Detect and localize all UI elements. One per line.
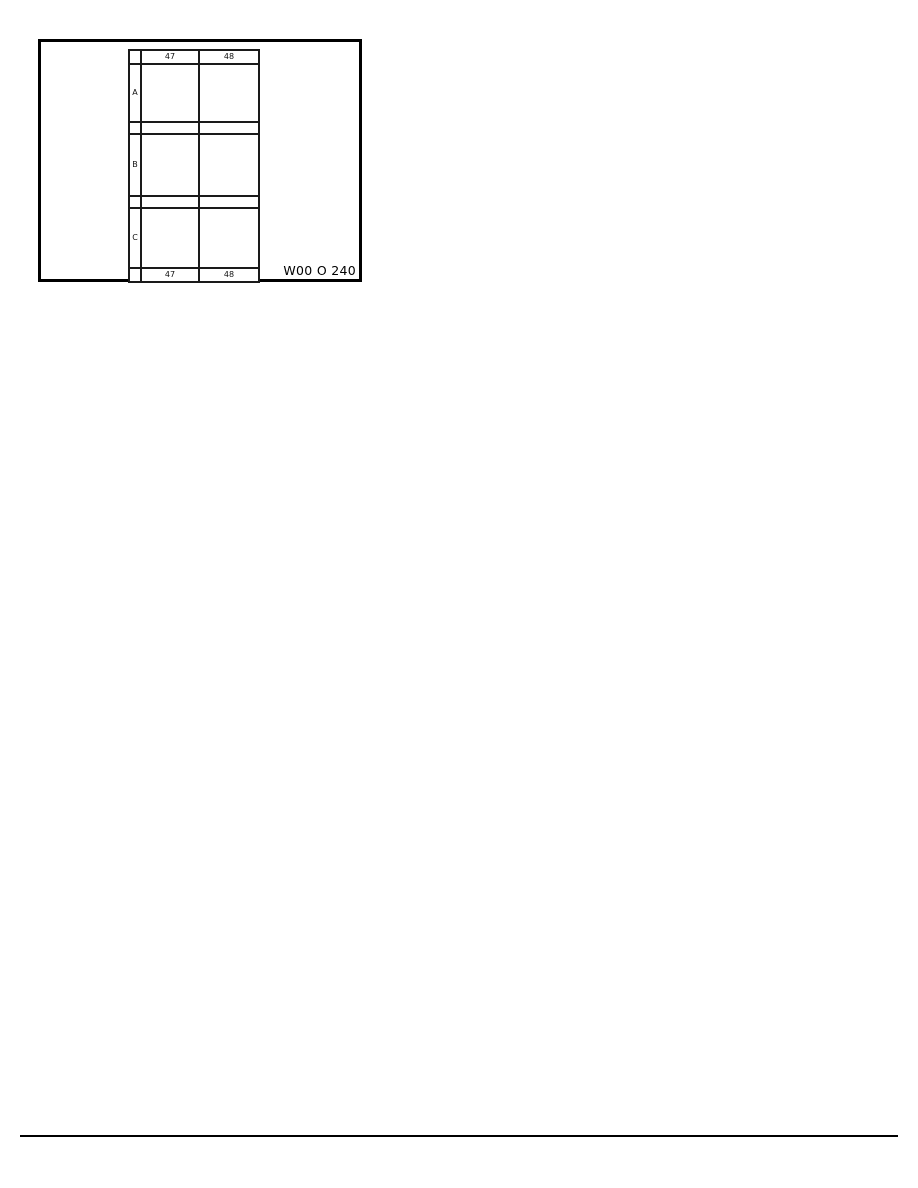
grid-spacer-row	[129, 196, 259, 208]
grid-footer-row: 47 48	[129, 268, 259, 282]
pin-grid: 47 48 A B	[128, 49, 260, 283]
grid-col-footer-48: 48	[199, 268, 259, 282]
grid-cell	[199, 64, 259, 122]
grid-header-row: 47 48	[129, 50, 259, 64]
grid-cell	[141, 64, 199, 122]
grid-row-label-c: C	[129, 208, 141, 268]
grid-row-label-a: A	[129, 64, 141, 122]
grid-cell	[199, 208, 259, 268]
grid-cell	[199, 134, 259, 196]
grid-row-b: B	[129, 134, 259, 196]
grid-row-label-b: B	[129, 134, 141, 196]
page-footer-rule	[20, 1135, 898, 1137]
figure-frame: 47 48 A B	[38, 39, 362, 282]
grid-cell	[141, 122, 199, 134]
manual-page: 47 48 A B	[0, 0, 918, 1188]
grid-col-header-48: 48	[199, 50, 259, 64]
grid-corner-cell	[129, 50, 141, 64]
grid-row-a: A	[129, 64, 259, 122]
grid-cell	[129, 122, 141, 134]
grid-cell	[141, 134, 199, 196]
grid-cell	[129, 196, 141, 208]
figure-code: W00 O 240	[283, 264, 356, 278]
grid-cell	[199, 122, 259, 134]
grid-cell	[141, 196, 199, 208]
grid-col-header-47: 47	[141, 50, 199, 64]
grid-cell	[141, 208, 199, 268]
grid-row-c: C	[129, 208, 259, 268]
grid-spacer-row	[129, 122, 259, 134]
grid-cell	[199, 196, 259, 208]
grid-corner-cell	[129, 268, 141, 282]
grid-col-footer-47: 47	[141, 268, 199, 282]
